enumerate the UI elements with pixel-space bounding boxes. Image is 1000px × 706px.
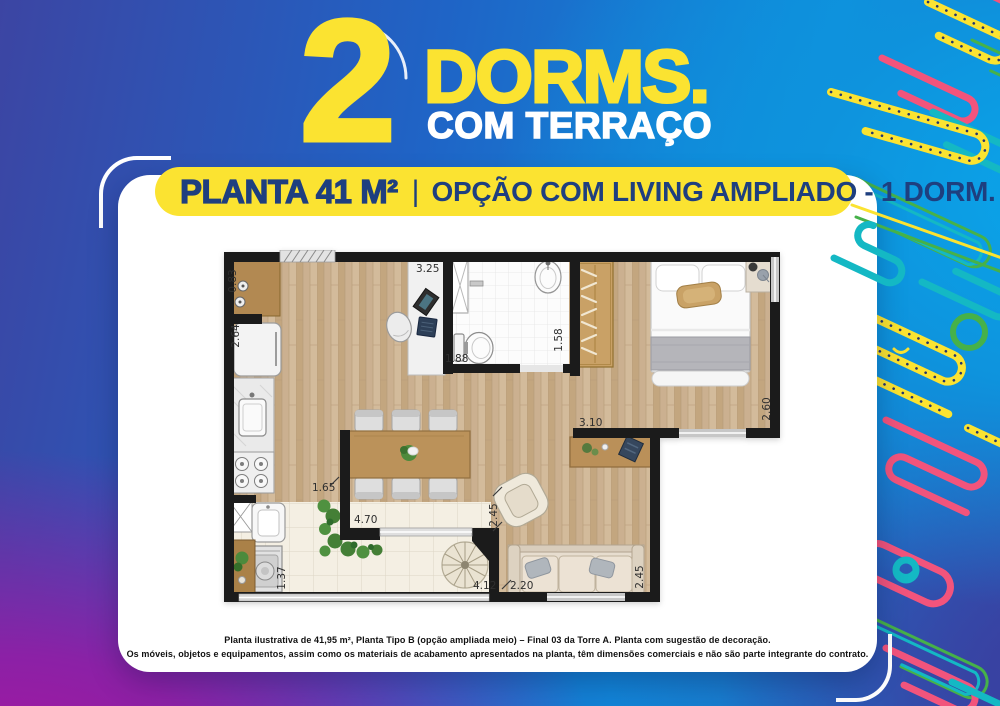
poster-root: 2 DORMS. COM TERRAÇO PLANTA 41 M² | OPÇÃ… xyxy=(0,0,1000,706)
dimension-label: 3.25 xyxy=(416,263,439,275)
dimension-label: 1.65 xyxy=(312,482,335,494)
dimension-label: 1.58 xyxy=(553,328,565,351)
disclaimer-line-2: Os móveis, objetos e equipamentos, assim… xyxy=(118,648,877,662)
kitchen-sink xyxy=(229,378,274,454)
dimension-label: 4.12 xyxy=(473,580,496,592)
floor-plan: 0.83 2.64 3.25 1.88 1.58 3.10 2.60 1.65 … xyxy=(222,250,794,610)
title-subtitle: COM TERRAÇO xyxy=(427,105,712,147)
dimension-label: 4.70 xyxy=(354,514,377,526)
double-bed xyxy=(651,259,750,386)
plan-card: PLANTA 41 M² | OPÇÃO COM LIVING AMPLIADO… xyxy=(118,175,877,672)
stove xyxy=(229,452,274,493)
wardrobe xyxy=(577,261,613,367)
disclaimer-line-1: Planta ilustrativa de 41,95 m², Planta T… xyxy=(118,634,877,648)
dimension-label: 1.37 xyxy=(276,566,288,589)
laundry-sink xyxy=(252,503,285,542)
plan-banner-divider: | xyxy=(412,175,420,209)
plan-option-label: OPÇÃO COM LIVING AMPLIADO - 1 DORM. xyxy=(431,176,995,208)
nightstand xyxy=(746,259,771,292)
dimension-label: 0.83 xyxy=(227,269,239,292)
dimension-label: 2.60 xyxy=(761,397,773,420)
title-big-number: 2 xyxy=(300,6,396,157)
sideboard xyxy=(570,436,652,467)
dimension-label: 2.45 xyxy=(488,503,500,526)
bathroom-sink xyxy=(535,261,561,294)
dining-set xyxy=(348,410,470,499)
disclaimer: Planta ilustrativa de 41,95 m², Planta T… xyxy=(118,634,877,662)
dimension-label: 2.45 xyxy=(634,565,646,588)
plan-area-label: PLANTA 41 M² xyxy=(180,173,398,211)
dimension-label: 2.64 xyxy=(230,324,242,348)
dimension-label: 1.88 xyxy=(445,353,468,365)
dimension-label: 2.20 xyxy=(510,580,533,592)
dimension-label: 3.10 xyxy=(579,417,602,429)
desk xyxy=(408,258,445,375)
plan-banner: PLANTA 41 M² | OPÇÃO COM LIVING AMPLIADO… xyxy=(155,167,853,216)
